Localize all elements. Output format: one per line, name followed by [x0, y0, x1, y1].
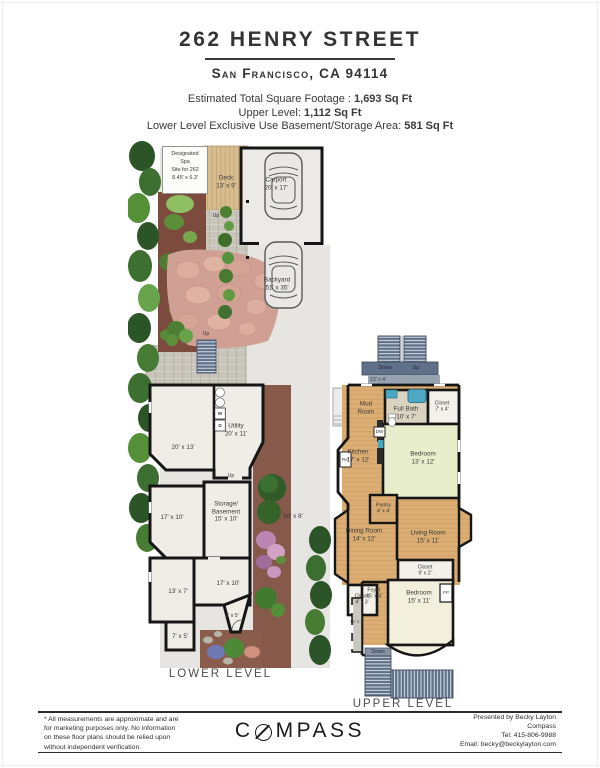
sqft-total-label: Estimated Total Square Footage : — [188, 93, 354, 105]
floor-plan-sheet: 262 HENRY STREET San Francisco, CA 94114… — [0, 0, 600, 768]
living-room-label: Living Room 15' x 11' — [411, 529, 446, 544]
window — [458, 472, 460, 484]
backyard-label: Backyard 51' x 35' — [264, 276, 290, 291]
hall-label: 11' x 3' — [350, 619, 364, 625]
lower-level-caption: LOWER LEVEL — [158, 668, 283, 680]
sqft-total-value: 1,693 Sq Ft — [354, 93, 412, 105]
sqft-upper-label: Upper Level: — [239, 107, 304, 119]
sqft-line-upper: Upper Level: 1,112 Sq Ft — [0, 107, 600, 121]
front-stairs-down-label: Down — [371, 649, 384, 655]
sqft-lower-value: 581 Sq Ft — [404, 120, 453, 132]
room-17x10-mid-label: 17' x 10' — [216, 580, 239, 588]
pantry-label: Pantry 4' x 4' — [376, 503, 391, 516]
mud-room-label: Mud Room — [358, 400, 375, 415]
fireplace-label: FP — [443, 590, 449, 596]
window — [351, 641, 353, 649]
room-20x13-label: 20' x 13' — [171, 444, 194, 452]
carport-label: Carport 20' x 17' — [264, 176, 287, 191]
footer-rule-top — [38, 711, 562, 713]
up-interior-label: Up — [228, 473, 235, 479]
compass-logo-c: C — [235, 719, 254, 743]
hall-closet-label: Closet 9' x 2' — [418, 565, 433, 578]
window — [351, 605, 353, 613]
living-room-bay-window — [459, 508, 471, 547]
window — [458, 440, 460, 452]
side-yard-label: 58' x 8' — [283, 513, 303, 521]
upper-level-plan: Down Up 13' x 4' Mud Room Full Bath 10' … — [328, 330, 478, 712]
rear-bedroom-label: Bedroom 13' x 12' — [410, 450, 436, 465]
deck-label: Deck 13' x 9' — [216, 174, 236, 189]
upper-level-caption: UPPER LEVEL — [338, 698, 468, 710]
sqft-line-lower: Lower Level Exclusive Use Basement/Stora… — [0, 120, 600, 134]
storage-label: Storage/ Basement 15' x 10' — [212, 500, 240, 523]
page-title: 262 HENRY STREET — [0, 28, 600, 52]
window — [351, 625, 353, 633]
utility-label: Utility 20' x 11' — [225, 422, 248, 437]
dining-room-label: Dining Room 14' x 12' — [346, 527, 382, 542]
window — [434, 384, 445, 386]
up-path-label: Up — [213, 213, 220, 219]
page-subtitle: San Francisco, CA 94114 — [0, 66, 600, 81]
exterior-stairs-up — [197, 340, 216, 373]
car-icon — [265, 242, 302, 308]
washer-label: W — [218, 411, 222, 417]
lower-level-drawing — [128, 140, 338, 685]
front-bedroom-label: Bedroom 15' x 11' — [406, 589, 432, 604]
lower-level-plan: Designated Spa Site for 262 8.45' x 6.3'… — [128, 140, 338, 685]
sqft-upper-value: 1,112 Sq Ft — [304, 107, 361, 119]
window — [361, 384, 372, 386]
presented-by-block: Presented by Becky Layton Compass Tel: 4… — [460, 714, 556, 750]
foyer-label: Foyer 15' x 4' — [366, 588, 382, 601]
window — [149, 402, 151, 413]
title-underline — [205, 58, 395, 60]
compass-o-icon — [255, 724, 272, 741]
dining-room-bay-window — [335, 510, 348, 583]
stairs-down-label: Down — [378, 365, 391, 371]
room-6x5-label: 6' x 5' — [225, 613, 238, 619]
room-7x5-label: 7' x 5' — [172, 633, 188, 641]
sqft-summary: Estimated Total Square Footage : 1,693 S… — [0, 93, 600, 134]
refrigerator-label: Ref — [342, 457, 349, 463]
window — [149, 572, 151, 582]
stairs-up-label: Up — [413, 365, 420, 371]
presented-by-line: Presented by Becky Layton — [460, 714, 556, 723]
dishwasher-label: DW — [376, 429, 384, 435]
footer-rule-bottom — [38, 752, 562, 753]
presented-company-line: Compass — [460, 723, 556, 732]
room-13x7-label: 13' x 7' — [168, 588, 188, 596]
bath-closet-label: Closet 7' x 4' — [435, 401, 450, 414]
room-17x10-left-label: 17' x 10' — [160, 514, 183, 522]
full-bath-label: Full Bath 10' x 7' — [394, 405, 419, 420]
landing-label: 13' x 4' — [370, 377, 386, 383]
sqft-line-total: Estimated Total Square Footage : 1,693 S… — [0, 93, 600, 107]
kitchen-label: Kitchen 17' x 12' — [346, 448, 369, 463]
spa-site-label: Designated Spa Site for 262 8.45' x 6.3' — [162, 146, 208, 194]
presented-tel-line: Tel: 415-806-9988 — [460, 732, 556, 741]
window — [149, 502, 151, 513]
storage-door-opening — [208, 557, 220, 563]
header: 262 HENRY STREET San Francisco, CA 94114… — [0, 28, 600, 134]
sqft-lower-label: Lower Level Exclusive Use Basement/Stora… — [147, 120, 404, 132]
upper-level-drawing — [328, 330, 478, 712]
compass-logo-mpass: MPASS — [276, 719, 365, 743]
dryer-label: D — [218, 423, 221, 429]
up-stairs-label: Up — [203, 331, 210, 337]
presented-email-line: Email: becky@beckylayton.com — [460, 741, 556, 750]
